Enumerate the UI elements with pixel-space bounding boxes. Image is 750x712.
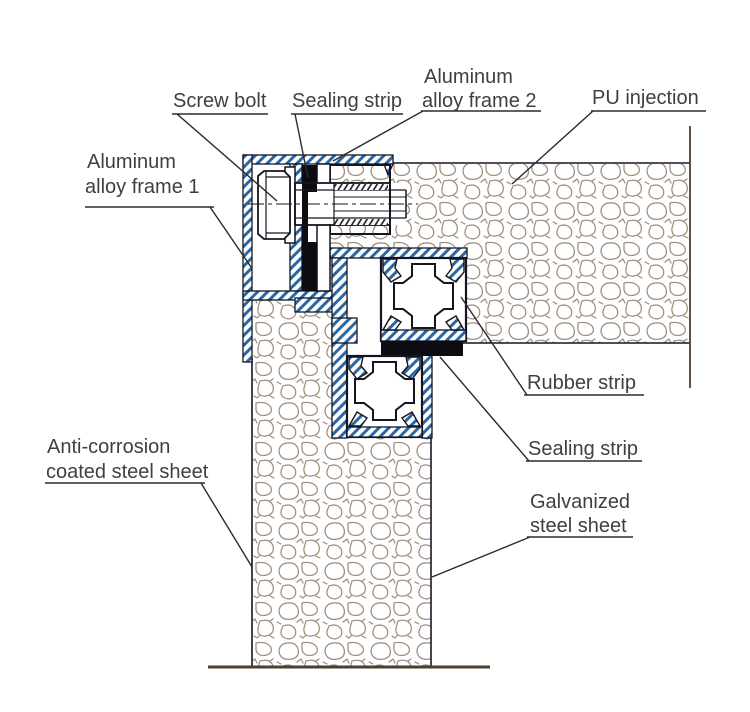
leader-aluminum-frame-1 [85, 207, 251, 267]
lower-cam-bottom-bar [347, 427, 422, 437]
label-pu-injection: PU injection [592, 87, 699, 109]
label-galvanized: Galvanized steel sheet [530, 491, 630, 537]
frame2-bottom-flange [330, 248, 467, 258]
leader-aluminum-frame-2 [333, 111, 541, 161]
label-anti-corrosion-line2: coated steel sheet [46, 461, 209, 483]
leader-anti-corrosion [45, 483, 252, 567]
label-aluminum-frame-2: Aluminum alloy frame 2 [422, 66, 537, 112]
label-aluminum-frame-1-line2: alloy frame 1 [85, 176, 200, 198]
label-sealing-strip-bottom: Sealing strip [528, 438, 638, 460]
rubber-strip-shape [381, 341, 463, 356]
label-screw-bolt: Screw bolt [173, 90, 267, 112]
thread-bottom [334, 219, 388, 225]
center-wall [332, 258, 347, 438]
label-aluminum-frame-1: Aluminum alloy frame 1 [85, 151, 200, 198]
leader-galvanized [432, 537, 633, 577]
label-aluminum-frame-2-line1: Aluminum [424, 66, 513, 88]
cross-section-drawing: Screw bolt Sealing strip Aluminum alloy … [0, 0, 750, 712]
lower-cam-profile [347, 356, 422, 437]
label-sealing-strip-top: Sealing strip [292, 90, 402, 112]
top-flange-bar [243, 155, 393, 164]
center-wall-foot [332, 318, 357, 343]
label-aluminum-frame-1-line1: Aluminum [87, 151, 176, 173]
label-anti-corrosion-line1: Anti-corrosion [47, 436, 170, 458]
upper-cam-profile [381, 258, 466, 341]
bolt-hex-head [258, 171, 290, 239]
thread-top [334, 184, 388, 190]
label-rubber-strip: Rubber strip [527, 372, 636, 394]
lower-profile-right-wall [422, 354, 432, 438]
label-aluminum-frame-2-line2: alloy frame 2 [422, 90, 537, 112]
label-galvanized-line1: Galvanized [530, 491, 630, 513]
upper-cam-bottom-bar [381, 330, 466, 341]
diagram-stage: Screw bolt Sealing strip Aluminum alloy … [0, 0, 750, 712]
label-galvanized-line2: steel sheet [530, 515, 627, 537]
label-anti-corrosion: Anti-corrosion coated steel sheet [46, 436, 209, 483]
